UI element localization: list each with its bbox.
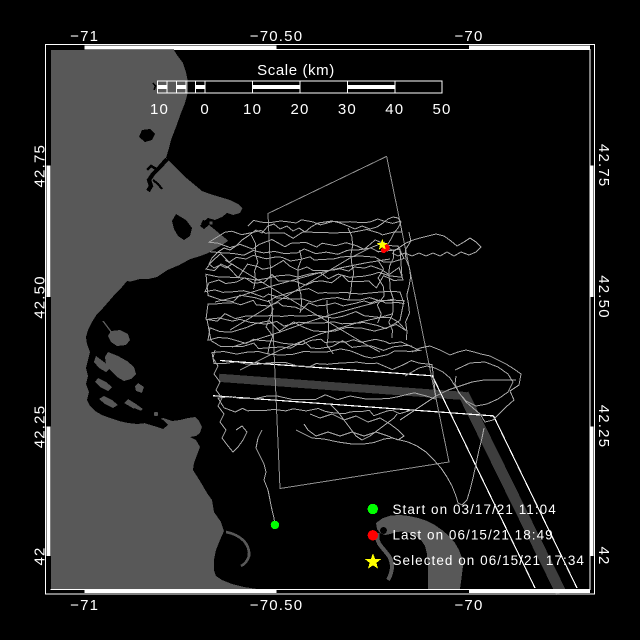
svg-text:−70: −70 xyxy=(454,597,483,614)
svg-text:Start on 03/17/21 11:04: Start on 03/17/21 11:04 xyxy=(393,502,557,517)
svg-text:42.75: 42.75 xyxy=(32,144,49,188)
svg-text:42.25: 42.25 xyxy=(595,405,612,449)
svg-text:42.75: 42.75 xyxy=(595,144,612,188)
svg-text:−71: −71 xyxy=(70,28,99,45)
svg-text:−70.50: −70.50 xyxy=(250,597,304,614)
svg-text:10: 10 xyxy=(243,101,262,118)
svg-text:30: 30 xyxy=(338,101,357,118)
svg-text:Scale (km): Scale (km) xyxy=(257,62,335,79)
svg-text:42.50: 42.50 xyxy=(32,275,49,319)
svg-text:42.50: 42.50 xyxy=(595,275,612,319)
svg-text:50: 50 xyxy=(432,101,451,118)
svg-text:−71: −71 xyxy=(70,597,99,614)
svg-text:0: 0 xyxy=(200,101,210,118)
svg-text:10: 10 xyxy=(150,101,169,118)
svg-text:40: 40 xyxy=(385,101,404,118)
svg-text:−70.50: −70.50 xyxy=(250,28,304,45)
svg-text:20: 20 xyxy=(290,101,309,118)
svg-text:−70: −70 xyxy=(454,28,483,45)
svg-text:Selected on 06/15/21 17:34: Selected on 06/15/21 17:34 xyxy=(393,553,585,568)
svg-text:42.25: 42.25 xyxy=(32,405,49,449)
svg-text:42: 42 xyxy=(32,546,49,565)
svg-text:42: 42 xyxy=(595,546,612,565)
svg-text:Last on 06/15/21 18:49: Last on 06/15/21 18:49 xyxy=(393,527,554,542)
